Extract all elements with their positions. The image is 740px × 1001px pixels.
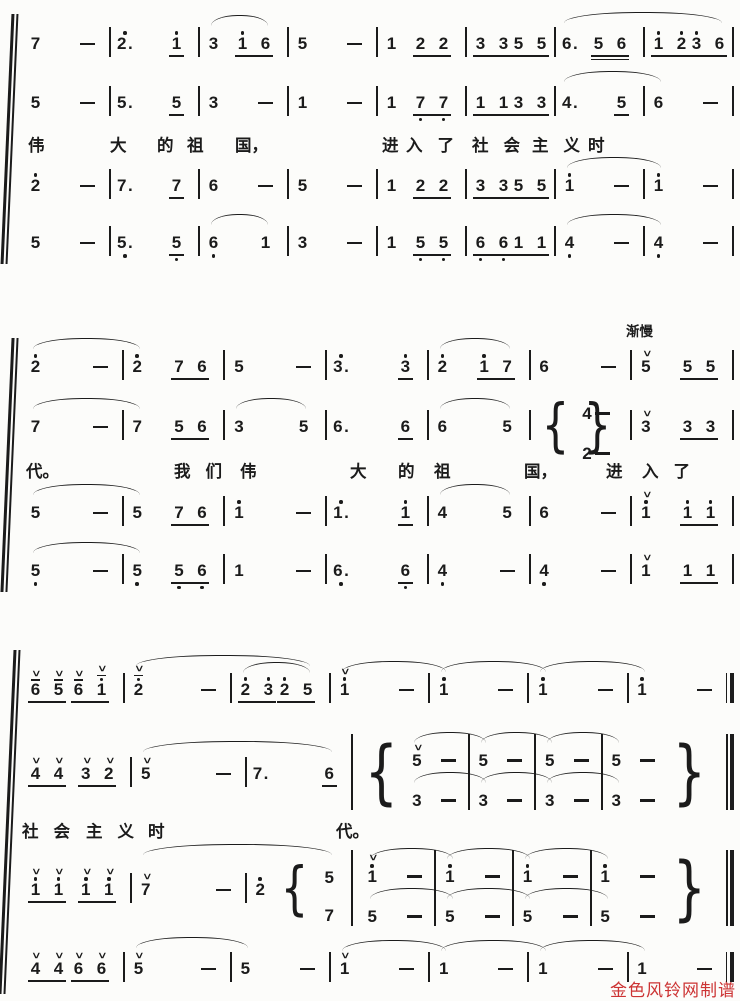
measure: 6.56: [556, 18, 643, 66]
note: 6: [398, 401, 413, 449]
measure: 276: [124, 341, 224, 389]
note-cell: 2: [238, 664, 253, 699]
measure: 1: [289, 77, 376, 125]
measure: 4: [429, 545, 529, 593]
beam-underline: [398, 438, 413, 440]
note: [640, 735, 655, 770]
chord-brace: {: [364, 741, 397, 804]
held-note-dash: [498, 689, 513, 692]
note: 1: [169, 18, 184, 66]
note-cell: 4: [651, 217, 666, 252]
measure: 7: [22, 401, 122, 449]
beam-underline: [511, 55, 549, 57]
note-digit: 3: [81, 765, 90, 783]
note-cell: 5: [591, 18, 606, 53]
note: [563, 851, 578, 886]
note: 36: [689, 18, 727, 66]
accent-icon: >: [96, 665, 107, 671]
note-digit: 5: [31, 562, 40, 580]
note-digit: 2: [677, 35, 686, 53]
measure: 6: [645, 77, 732, 125]
note: 6: [206, 217, 221, 265]
note: [296, 487, 311, 535]
measure: 7: [22, 18, 109, 66]
beam-underline: [591, 55, 629, 57]
measure: 2: [22, 341, 122, 389]
chord-brace: }: [584, 399, 612, 451]
note-cell: 1: [258, 217, 273, 252]
note: 22: [413, 160, 451, 208]
note-digit: 1: [234, 562, 243, 580]
note-cell: [640, 735, 655, 770]
note-cell: 5: [511, 18, 526, 53]
note: 1: [436, 664, 451, 712]
note-cell: [703, 160, 718, 195]
barline: [732, 226, 734, 256]
held-note-dash: [347, 102, 362, 105]
note: [498, 664, 513, 712]
note: 4: [537, 545, 552, 593]
note-digit: 6: [401, 562, 410, 580]
held-note-dash: [614, 242, 629, 245]
note: [80, 18, 95, 66]
measure: 3: [289, 217, 376, 265]
held-note-dash: [574, 759, 589, 762]
beam-underline: [238, 701, 276, 703]
note-digit: 3: [514, 94, 523, 112]
note-cell: 5: [171, 545, 186, 580]
note-digit: 1: [637, 960, 646, 978]
note-cell: 1: [496, 77, 511, 112]
note: 1: [398, 487, 413, 535]
measure: 1: [629, 664, 726, 712]
note-cell: >5: [131, 943, 146, 978]
note: [258, 77, 273, 125]
note-digit: 5: [303, 681, 312, 699]
note-cell: 1: [473, 77, 488, 112]
note-cell: >7: [138, 864, 153, 899]
note: 2: [28, 160, 43, 208]
note-cell: [407, 891, 422, 926]
note-digit: 5: [545, 752, 554, 770]
note-digit: 6: [197, 504, 206, 522]
augmentation-dot: .: [128, 177, 133, 195]
note-digit: 6: [539, 358, 548, 376]
measure: 177: [378, 77, 465, 125]
lyric-syllable: 代。: [336, 818, 369, 842]
note-cell: 1: [235, 18, 250, 53]
measure: 5: [22, 217, 109, 265]
voice-line: >6>5>6>1>22325>1111: [10, 648, 734, 728]
note-cell: 3: [534, 77, 549, 112]
beam-underline: [473, 197, 511, 199]
held-note-dash: [500, 570, 515, 573]
note: [697, 943, 712, 991]
note-cell: 5: [28, 545, 43, 580]
accent-icon: >: [73, 952, 84, 958]
note-cell: [93, 487, 108, 522]
note-cell: [563, 891, 578, 926]
note: 77: [413, 77, 451, 125]
note-cell: [441, 735, 456, 770]
held-note-dash: [93, 570, 108, 573]
note-digit: 6: [261, 35, 270, 53]
measure: 5.5: [111, 77, 198, 125]
held-note-dash: [80, 185, 95, 188]
note-digit: 5: [31, 504, 40, 522]
note: [93, 487, 108, 535]
note: [441, 775, 456, 810]
held-note-dash: [93, 512, 108, 515]
beam-underline: [413, 114, 451, 116]
note-digit: 7: [31, 418, 40, 436]
note-cell: [80, 18, 95, 53]
note-cell: >6: [71, 943, 86, 978]
note: [399, 943, 414, 991]
lyric-syllable: 入了: [642, 458, 705, 482]
note-digit: 5: [298, 35, 307, 53]
note-cell: [697, 664, 712, 699]
note-digit: 6: [476, 234, 485, 252]
note-cell: 1: [703, 545, 718, 580]
measure: 2.1: [111, 18, 198, 66]
note: [640, 891, 655, 926]
barline: [732, 350, 734, 380]
lyrics-line: 伟大的祖国，进入了社会主义时: [10, 130, 734, 156]
held-note-dash: [296, 366, 311, 369]
note: >5: [131, 943, 146, 991]
held-note-dash: [216, 773, 231, 776]
voice-line: >1>1>1>1>72{57>15151515}: [10, 840, 734, 936]
lyric-syllable: 进: [382, 132, 399, 156]
note-digit: 2: [439, 35, 448, 53]
note-cell: >1: [638, 545, 653, 580]
note-digit: 6: [401, 418, 410, 436]
note-digit: 6: [209, 177, 218, 195]
final-barline: [726, 734, 734, 810]
note-digit: 5: [54, 681, 63, 699]
divisi-row: 3: [403, 775, 467, 810]
note-cell: 5: [534, 18, 549, 53]
note-digit: 1: [172, 35, 181, 53]
divisi-row: 1: [592, 851, 668, 886]
beam-underline: [78, 785, 116, 787]
held-note-dash: [574, 799, 589, 802]
measure: 5.5: [111, 217, 198, 265]
note-digit: 6: [654, 94, 663, 112]
held-note-dash: [640, 875, 655, 878]
note: 12: [651, 18, 689, 66]
note-digit: 1: [439, 681, 448, 699]
note-digit: 1: [445, 868, 454, 886]
note: 7: [169, 160, 184, 208]
note-digit: 3: [234, 418, 243, 436]
held-note-dash: [93, 366, 108, 369]
measure: >555: [632, 341, 732, 389]
note-digit: 1: [641, 562, 650, 580]
note: 1: [384, 77, 399, 125]
measure: 217: [429, 341, 529, 389]
note-digit: 6: [325, 765, 334, 783]
note-digit: 5: [141, 765, 150, 783]
beam-underline: [398, 524, 413, 526]
note: [601, 545, 616, 593]
note-digit: 3: [706, 418, 715, 436]
note-digit: 1: [333, 504, 342, 522]
note: >5: [409, 735, 424, 770]
note: [80, 160, 95, 208]
note: 5: [500, 487, 515, 535]
beam-underline: [171, 438, 209, 440]
voice-line: >4>4>6>6>55>1111: [10, 936, 734, 998]
note-digit: 3: [412, 792, 421, 810]
note-digit: 1: [514, 234, 523, 252]
note-digit: 3: [401, 358, 410, 376]
voice-line: 72.1316512233556.561236: [10, 12, 734, 72]
note: >4>4: [28, 748, 66, 796]
note: 3: [231, 401, 246, 449]
accent-icon: >: [53, 952, 64, 958]
note-digit: 1: [387, 94, 396, 112]
note: 1: [442, 851, 457, 886]
voice-line: 27.765122335511: [10, 156, 734, 212]
held-note-dash: [347, 242, 362, 245]
note-digit: 6: [31, 681, 40, 699]
note-digit: 7: [117, 177, 126, 195]
note-digit: 5: [514, 177, 523, 195]
accent-icon: >: [367, 855, 378, 861]
note-digit: 3: [476, 177, 485, 195]
accent-icon: >: [80, 757, 91, 763]
note: 17: [477, 341, 515, 389]
note: 5: [365, 891, 380, 926]
note: 5: [614, 77, 629, 125]
note-digit: 6: [197, 418, 206, 436]
note-digit: 5: [706, 358, 715, 376]
note: 1: [562, 160, 577, 208]
accent-icon: >: [640, 350, 651, 356]
note-digit: 5: [445, 908, 454, 926]
note-cell: 2: [436, 160, 451, 195]
lyric-syllable: 祖: [434, 458, 451, 482]
held-note-dash: [703, 185, 718, 188]
divisi-row: 3: [536, 775, 600, 810]
divisi-row: 3: [470, 775, 534, 810]
note-digit: 7: [172, 177, 181, 195]
note: 11: [680, 487, 718, 535]
divisi-row: >1: [359, 851, 435, 886]
measure: 3355: [467, 160, 554, 208]
note-cell: 6: [651, 77, 666, 112]
note-digit: 1: [641, 504, 650, 522]
held-note-dash: [300, 968, 315, 971]
note: 76: [171, 341, 209, 389]
chord-brace: {: [281, 862, 309, 914]
note-digit: 1: [387, 234, 396, 252]
note-cell: [614, 160, 629, 195]
note-cell: 1: [231, 545, 246, 580]
note-cell: 5: [171, 401, 186, 436]
barline: [732, 86, 734, 116]
note-digit: 5: [683, 358, 692, 376]
note: 5: [169, 217, 184, 265]
note-cell: [498, 943, 513, 978]
note-digit: 5: [172, 234, 181, 252]
note-cell: 5: [238, 943, 253, 978]
measure: 155: [378, 217, 465, 265]
note-cell: 6.: [333, 545, 349, 580]
accent-icon: >: [30, 670, 41, 676]
note-cell: [347, 77, 362, 112]
beam-underline: [28, 785, 66, 787]
note-digit: 1: [368, 868, 377, 886]
accent-icon: >: [140, 757, 151, 763]
note: 1: [598, 851, 613, 886]
measure: {42}: [531, 388, 631, 463]
note: 2: [435, 341, 450, 389]
note-cell: >4: [28, 943, 43, 978]
note-cell: 1: [680, 487, 695, 522]
note: [441, 735, 456, 770]
held-note-dash: [441, 799, 456, 802]
note-digit: 1: [523, 868, 532, 886]
note-cell: 1: [635, 664, 650, 699]
lyric-syllable: 大: [350, 458, 367, 482]
note: 3: [206, 77, 221, 125]
augmentation-dot: .: [573, 35, 578, 53]
held-note-dash: [598, 689, 613, 692]
lyric-syllable: 大: [110, 132, 127, 156]
note: [640, 851, 655, 886]
note-digit: 3: [611, 792, 620, 810]
note-digit: 3: [499, 35, 508, 53]
lyric-syllable: 祖: [187, 132, 204, 156]
note-digit: 1: [439, 960, 448, 978]
octave-dot-low: [442, 258, 446, 262]
note-digit: 6: [539, 504, 548, 522]
note-cell: 6: [194, 341, 209, 376]
note-cell: >3: [638, 401, 653, 436]
note: 25: [277, 664, 315, 712]
note-cell: 3: [511, 77, 526, 112]
measure: >5: [125, 943, 230, 991]
note-cell: 5: [413, 217, 428, 252]
note-cell: 5: [500, 487, 515, 522]
lyric-syllable: 主义: [532, 132, 595, 156]
note-digit: 5: [523, 908, 532, 926]
beam-underline: [322, 785, 337, 787]
note-cell: 3: [206, 77, 221, 112]
note-cell: 5: [296, 401, 311, 436]
note-digit: 6: [617, 35, 626, 53]
note: 6: [435, 401, 450, 449]
note: >3>2: [78, 748, 116, 796]
note-cell: 1: [384, 160, 399, 195]
note-cell: 6: [473, 217, 488, 252]
note: [507, 775, 522, 810]
octave-dot-low: [404, 586, 408, 590]
held-note-dash: [697, 689, 712, 692]
measure: >2: [125, 664, 230, 712]
note-cell: 6: [398, 545, 413, 580]
octave-dot-low: [175, 258, 179, 262]
note: [399, 664, 414, 712]
measure: {>53535353}: [353, 734, 726, 810]
note: 33: [511, 77, 549, 125]
note-cell: 5: [476, 735, 491, 770]
beam-underline: [614, 114, 629, 116]
note-cell: 3.: [333, 341, 349, 376]
measure: 6: [200, 160, 287, 208]
note-cell: 7.: [253, 748, 269, 783]
note-digit: 7: [439, 94, 448, 112]
measure: 556: [124, 545, 224, 593]
note: [601, 487, 616, 535]
note-digit: 1: [340, 681, 349, 699]
note-cell: >4: [51, 748, 66, 783]
note-cell: 1: [295, 77, 310, 112]
score-page: 渐慢 金色风铃网制谱 72.1316512233556.56123655.531…: [0, 0, 740, 1001]
note-cell: >1: [94, 664, 109, 699]
note-cell: 5: [231, 341, 246, 376]
note: [703, 217, 718, 265]
note-cell: 1.: [333, 487, 349, 522]
held-note-dash: [258, 102, 273, 105]
note-digit: 5: [299, 418, 308, 436]
note-digit: 2: [241, 681, 250, 699]
note-cell: 2: [674, 18, 689, 53]
measure: 6.6: [327, 401, 427, 449]
accent-icon: >: [140, 873, 151, 879]
held-note-dash: [216, 889, 231, 892]
note-cell: 2: [253, 864, 268, 899]
note: 33: [473, 18, 511, 66]
note-cell: 5: [680, 341, 695, 376]
note-cell: 5: [295, 18, 310, 53]
note-cell: 1: [384, 18, 399, 53]
note-cell: >1: [365, 851, 380, 886]
measure: 7.7: [111, 160, 198, 208]
barline: [732, 554, 734, 584]
note-digit: 1: [387, 177, 396, 195]
measure: 576: [124, 487, 224, 535]
measure: >6>5>6>1: [22, 664, 123, 712]
note-digit: 2: [255, 881, 264, 899]
note-digit: 1: [234, 504, 243, 522]
note-digit: 1: [654, 35, 663, 53]
note-cell: 6: [206, 217, 221, 252]
beam-underline: [169, 114, 184, 116]
note-cell: 4: [562, 217, 577, 252]
note-cell: 7: [322, 890, 337, 925]
note: [500, 545, 515, 593]
final-barline: [726, 850, 734, 926]
held-note-dash: [703, 242, 718, 245]
note-cell: [93, 545, 108, 580]
beam-underline: [680, 582, 718, 584]
chord-brace: }: [673, 857, 706, 920]
note-cell: 7.: [117, 160, 133, 195]
augmentation-dot: .: [344, 418, 349, 436]
note-cell: 1: [231, 487, 246, 522]
note-cell: >5: [138, 748, 153, 783]
system-2: 227653.32176>5557756356.665{42}>333代。我们伟…: [10, 336, 734, 598]
note-digit: 2: [134, 681, 143, 699]
beam-underline: [169, 254, 184, 256]
note-cell: 7: [500, 341, 515, 376]
chord-brace: {: [541, 399, 569, 451]
note-cell: 5: [534, 160, 549, 195]
